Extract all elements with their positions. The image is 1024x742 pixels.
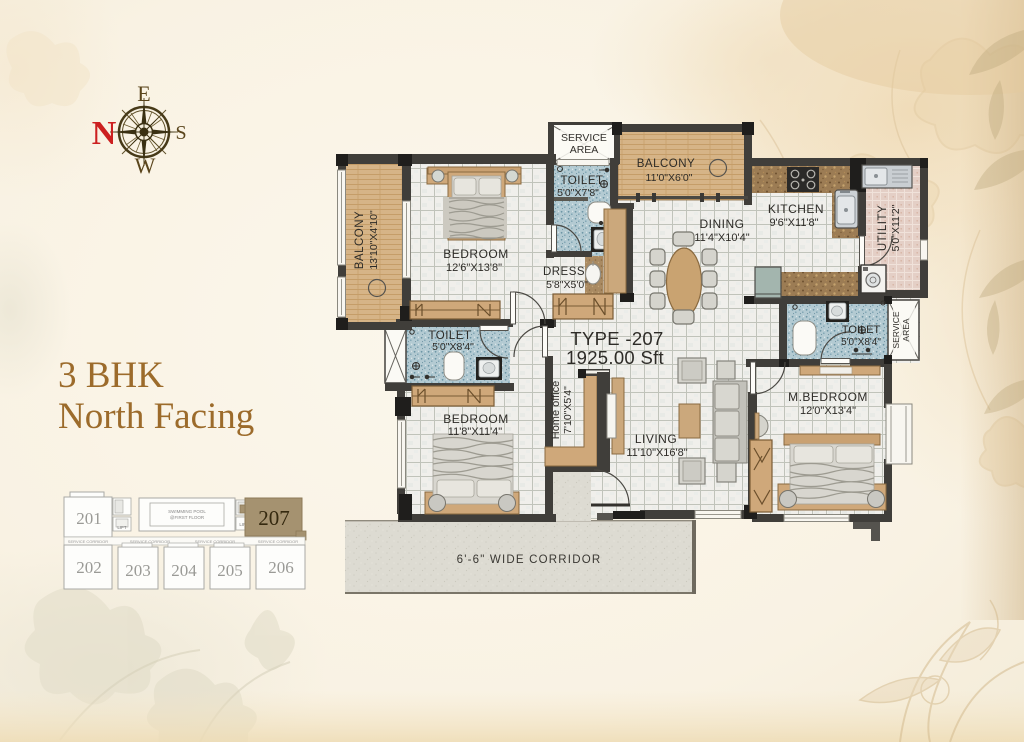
- svg-text:11'0"X6'0": 11'0"X6'0": [646, 172, 693, 184]
- svg-text:BALCONY: BALCONY: [354, 211, 366, 269]
- svg-text:13'10"X4'10": 13'10"X4'10": [368, 210, 380, 270]
- svg-text:5'8"X5'0": 5'8"X5'0": [546, 279, 588, 291]
- svg-text:W: W: [135, 153, 156, 178]
- svg-text:5'0"X7'8": 5'0"X7'8": [557, 187, 599, 199]
- svg-text:SERVICE CORRIDOR: SERVICE CORRIDOR: [258, 539, 298, 544]
- svg-text:204: 204: [171, 561, 197, 580]
- svg-text:5'0"X8'4": 5'0"X8'4": [432, 341, 474, 353]
- svg-text:201: 201: [76, 509, 102, 528]
- svg-text:UTILITY: UTILITY: [877, 205, 889, 251]
- svg-text:6'-6" WIDE CORRIDOR: 6'-6" WIDE CORRIDOR: [457, 554, 602, 566]
- svg-text:207: 207: [258, 506, 290, 530]
- svg-text:TYPE -207: TYPE -207: [570, 328, 663, 349]
- svg-text:11'8"X11'4": 11'8"X11'4": [448, 426, 503, 438]
- svg-text:LIFT: LIFT: [117, 525, 127, 530]
- svg-text:202: 202: [76, 558, 102, 577]
- svg-text:Home office: Home office: [550, 381, 562, 440]
- svg-text:9'6"X11'8": 9'6"X11'8": [769, 217, 818, 229]
- svg-text:7'10"X5'4": 7'10"X5'4": [562, 386, 574, 434]
- svg-text:DINING: DINING: [700, 217, 745, 231]
- svg-text:KITCHEN: KITCHEN: [768, 202, 824, 216]
- svg-text:TOILET: TOILET: [842, 324, 881, 336]
- svg-text:206: 206: [268, 558, 294, 577]
- svg-text:3 BHK: 3 BHK: [58, 355, 164, 396]
- svg-text:N: N: [92, 115, 117, 152]
- svg-text:BEDROOM: BEDROOM: [443, 412, 509, 426]
- svg-text:12'6"X13'8": 12'6"X13'8": [446, 262, 502, 274]
- svg-text:SWIMMING POOL: SWIMMING POOL: [168, 509, 206, 514]
- svg-text:1925.00 Sft: 1925.00 Sft: [566, 347, 664, 368]
- svg-text:5'0"X8'4": 5'0"X8'4": [841, 337, 881, 348]
- svg-text:SERVICE: SERVICE: [561, 132, 607, 144]
- svg-text:DRESS: DRESS: [543, 266, 585, 278]
- svg-text:12'0"X13'4": 12'0"X13'4": [800, 405, 856, 417]
- svg-text:LIVING: LIVING: [635, 432, 677, 446]
- svg-text:SERVICE: SERVICE: [891, 311, 901, 348]
- svg-text:AREA: AREA: [570, 144, 599, 156]
- svg-text:S: S: [175, 122, 186, 144]
- svg-text:SERVICE CORRIDOR: SERVICE CORRIDOR: [68, 539, 108, 544]
- svg-text:205: 205: [217, 561, 243, 580]
- svg-text:E: E: [137, 81, 150, 106]
- svg-text:11'10"X16'8": 11'10"X16'8": [626, 447, 687, 459]
- svg-text:203: 203: [125, 561, 151, 580]
- svg-text:@FIRST FLOOR: @FIRST FLOOR: [170, 515, 205, 520]
- svg-text:TOILET: TOILET: [560, 175, 603, 187]
- svg-text:BALCONY: BALCONY: [637, 158, 695, 170]
- svg-text:North Facing: North Facing: [58, 396, 254, 437]
- svg-text:11'4"X10'4": 11'4"X10'4": [694, 232, 749, 244]
- svg-text:M.BEDROOM: M.BEDROOM: [788, 390, 868, 404]
- svg-text:AREA: AREA: [901, 318, 911, 341]
- svg-text:5'0"X11'2": 5'0"X11'2": [890, 204, 902, 251]
- svg-text:BEDROOM: BEDROOM: [443, 247, 509, 261]
